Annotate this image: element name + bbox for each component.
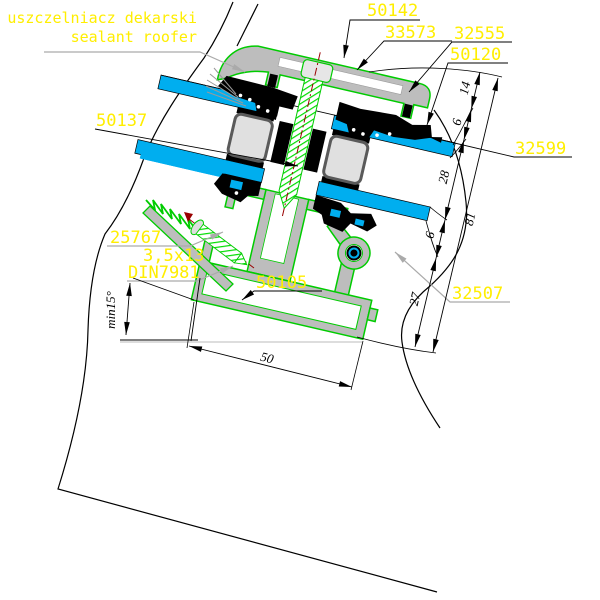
dim-text-6a: 6 — [449, 117, 465, 127]
label-25767: 25767 — [110, 228, 161, 248]
dim-text-14: 14 — [456, 79, 474, 96]
leader-33573 — [357, 41, 452, 70]
dimension-slope: min15° — [103, 278, 200, 341]
label-32507: 32507 — [452, 284, 503, 304]
membrane-break-line — [237, 4, 258, 46]
dim-text-27: 27 — [406, 290, 424, 307]
profile-tab-right — [367, 308, 377, 321]
label-32555: 32555 — [454, 24, 505, 44]
dim-text-28: 28 — [435, 168, 453, 185]
igu-spacer-right — [322, 135, 368, 184]
label-sealant-pl: uszczelniacz dekarski — [7, 9, 197, 27]
dim-text-slope: min15° — [103, 291, 118, 329]
igu-spacer-left — [227, 113, 273, 162]
label-50142: 50142 — [367, 1, 418, 21]
dim-text-6b: 6 — [422, 230, 438, 240]
label-sealant-en: sealant roofer — [71, 28, 197, 46]
technical-drawing-canvas: 14 6 28 6 27 81 50 min15° uszczelniacz d… — [0, 0, 600, 600]
label-33573: 33573 — [385, 23, 436, 43]
label-32599: 32599 — [515, 139, 566, 159]
label-50120: 50120 — [450, 45, 501, 65]
dim-line-6a — [464, 109, 471, 140]
dim-line-14 — [471, 72, 480, 109]
dim-text-50: 50 — [259, 349, 276, 367]
label-50137: 50137 — [96, 111, 147, 131]
right-break-outline — [402, 110, 467, 428]
dim-text-81: 81 — [461, 211, 479, 227]
dim-line-slope — [126, 283, 130, 335]
dim-line-6b — [436, 220, 445, 258]
cad-drawing-page: 14 6 28 6 27 81 50 min15° uszczelniacz d… — [0, 0, 600, 600]
label-screw-standard: DIN7981 — [128, 263, 200, 283]
label-50105: 50105 — [256, 273, 307, 293]
